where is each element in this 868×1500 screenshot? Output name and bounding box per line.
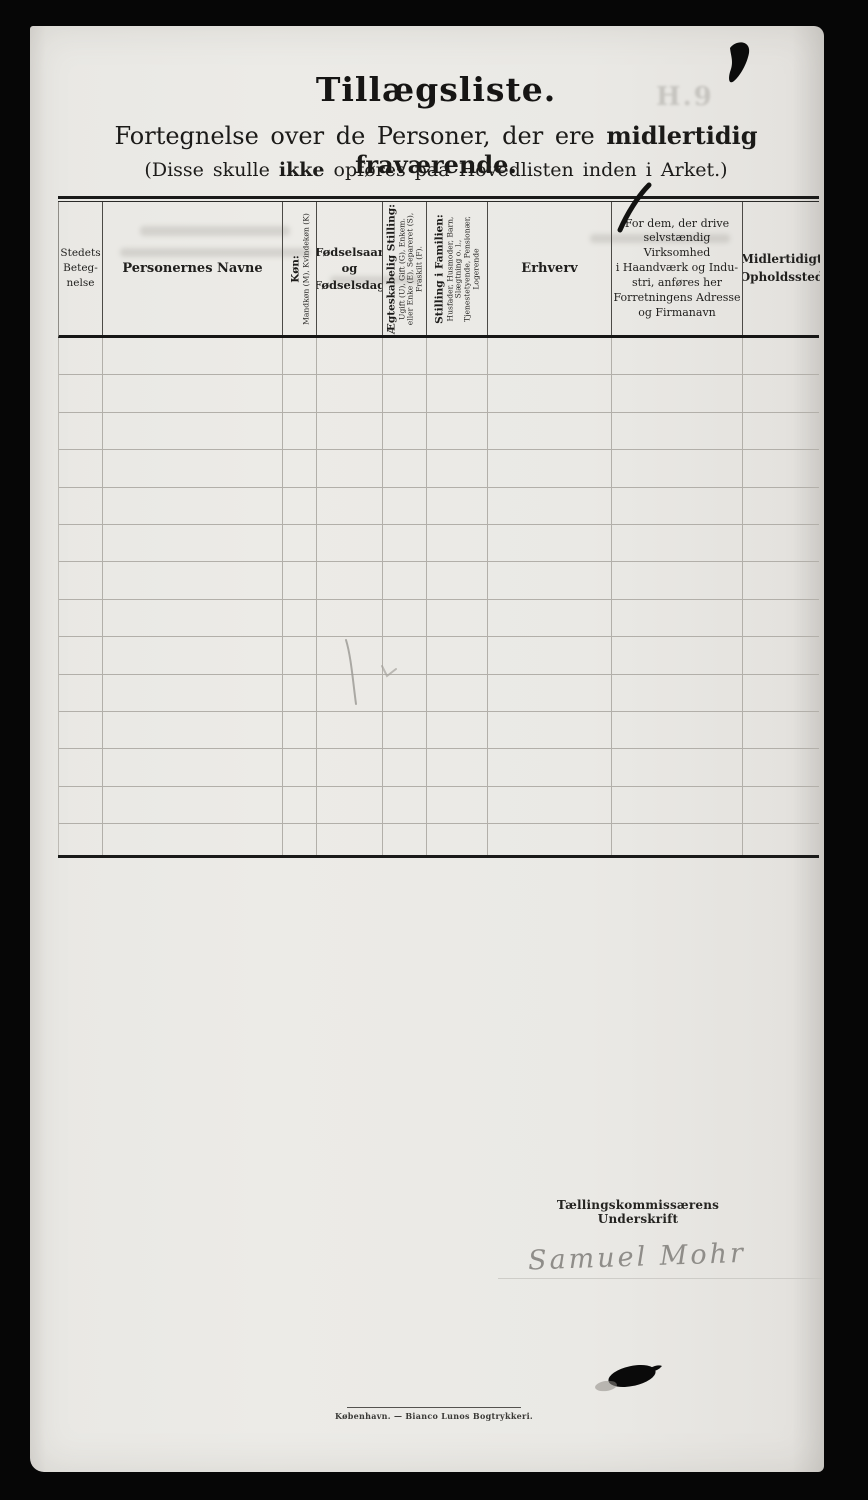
table-cell-empty [488,712,612,748]
table-cell-empty [283,712,317,748]
table-row [59,413,819,450]
table-cell-empty [612,600,743,636]
table-cell-empty [103,787,283,823]
table-row [59,488,819,525]
table-row [59,600,819,637]
table-cell-empty [283,413,317,449]
table-cell-empty [317,712,383,748]
table-cell-empty [283,525,317,561]
table-cell-empty [103,488,283,524]
rotated-header: Stilling i Familien: Husfader, Husmoder,… [433,204,480,334]
table-header-row: Stedets Beteg- nelse Personernes Navne K… [58,202,819,338]
column-header-label: Stedets Beteg- nelse [60,246,100,292]
table-cell-empty [103,338,283,374]
table-cell-empty [283,824,317,855]
table-cell-empty [488,488,612,524]
table-cell-empty [427,375,488,411]
table-cell-empty [317,824,383,855]
table-cell-empty [383,413,427,449]
table-cell-empty [283,600,317,636]
table-cell-empty [488,749,612,785]
signature-line [498,1278,822,1279]
table-cell-empty [612,675,743,711]
table-cell-empty [283,675,317,711]
signature-label: Tællingskommissærens Underskrift [528,1198,748,1226]
table-cell-empty [317,525,383,561]
table-cell-empty [383,488,427,524]
column-header-label: Fødselsaar og Fødselsdag [317,244,383,292]
table-row [59,675,819,712]
table-cell-empty [427,749,488,785]
table-cell-empty [612,749,743,785]
table-row [59,824,819,855]
table-cell-empty [383,450,427,486]
table-cell-empty [488,675,612,711]
table-row [59,338,819,375]
table-cell-empty [427,675,488,711]
column-header-label: Køn: [289,204,302,334]
table-cell-empty [383,787,427,823]
table-cell-empty [103,562,283,598]
table-cell-empty [612,488,743,524]
table-cell-empty [283,450,317,486]
table-cell-empty [103,600,283,636]
table-cell-empty [488,450,612,486]
table-cell-empty [283,787,317,823]
table-cell-empty [383,562,427,598]
table-cell-empty [612,375,743,411]
table-row [59,712,819,749]
table-cell-empty [103,675,283,711]
table-row [59,525,819,562]
table-cell-empty [283,375,317,411]
table-cell-empty [59,824,103,855]
table-cell-empty [488,600,612,636]
subtitle-prefix: Fortegnelse over de Personer, der ere [114,122,606,150]
table-cell-empty [743,749,820,785]
table-cell-empty [317,375,383,411]
table-cell-empty [743,413,820,449]
table-cell-empty [743,787,820,823]
column-header-sublabel: Ugift (U), Gift (G), Enkem. eller Enke (… [398,204,424,334]
table-cell-empty [103,413,283,449]
table-cell-empty [103,637,283,673]
table-cell-empty [427,787,488,823]
table-cell-empty [612,787,743,823]
table-cell-empty [317,787,383,823]
table-row [59,562,819,599]
column-header-label: Erhverv [521,261,577,276]
table-cell-empty [612,637,743,673]
table-cell-empty [103,712,283,748]
column-header-label: Personernes Navne [122,261,262,276]
column-header-virksomhed-note: For dem, der drive selvstændig Virksomhe… [612,202,743,335]
note-bold: ikke [279,159,325,181]
table-cell-empty [383,749,427,785]
table-row [59,375,819,412]
column-header-stilling-i-familien: Stilling i Familien: Husfader, Husmoder,… [427,202,488,335]
table-cell-empty [743,712,820,748]
note-prefix: (Disse skulle [144,159,278,181]
table-cell-empty [59,600,103,636]
table-cell-empty [488,787,612,823]
table-cell-empty [317,450,383,486]
table-cell-empty [383,675,427,711]
table-cell-empty [427,824,488,855]
table-cell-empty [59,712,103,748]
column-header-label: For dem, der drive selvstændig Virksomhe… [612,217,742,321]
table-cell-empty [283,562,317,598]
table-cell-empty [103,375,283,411]
column-header-erhverv: Erhverv [488,202,612,335]
table-cell-empty [103,749,283,785]
table-cell-empty [743,600,820,636]
table-cell-empty [383,525,427,561]
table-cell-empty [59,338,103,374]
table-cell-empty [427,488,488,524]
table-cell-empty [743,488,820,524]
table-cell-empty [283,488,317,524]
table-cell-empty [743,675,820,711]
table-cell-empty [383,600,427,636]
table-cell-empty [103,824,283,855]
table-cell-empty [488,525,612,561]
table-cell-empty [283,338,317,374]
table-cell-empty [59,450,103,486]
table-cell-empty [427,413,488,449]
table-cell-empty [59,749,103,785]
table-cell-empty [383,637,427,673]
table-cell-empty [612,824,743,855]
table-cell-empty [427,637,488,673]
table-cell-empty [488,637,612,673]
column-header-stedets-betegnelse: Stedets Beteg- nelse [59,202,103,335]
table-row [59,749,819,786]
column-header-kon: Køn: Mandkøn (M), Kvindekøn (K) [283,202,317,335]
table-cell-empty [743,450,820,486]
rotated-header: Køn: Mandkøn (M), Kvindekøn (K) [289,204,310,334]
table-cell-empty [317,637,383,673]
table-cell-empty [612,413,743,449]
column-header-aegteskabelig-stilling: Ægteskabelig Stilling: Ugift (U), Gift (… [383,202,427,335]
column-header-label: Stilling i Familien: [433,204,446,334]
table-cell-empty [427,712,488,748]
printer-imprint: København. — Bianco Lunos Bogtrykkeri. [322,1411,546,1421]
ink-blot-smear [594,1380,617,1393]
scan-background: H.9 Tillægsliste. Fortegnelse over de Pe… [0,0,868,1500]
handwritten-signature: Samuel Mohr [528,1239,729,1277]
column-header-label: Midlertidigt Opholdssted [743,251,820,286]
table-cell-empty [427,338,488,374]
table-cell-empty [317,600,383,636]
table-cell-empty [427,450,488,486]
table-cell-empty [59,488,103,524]
table-cell-empty [488,375,612,411]
table-cell-empty [612,338,743,374]
page-title: Tillægsliste. [30,70,824,109]
note-suffix: opføres paa Hovedlisten inden i Arket.) [325,159,728,181]
table-cell-empty [743,562,820,598]
ink-blot-tail [650,1365,662,1372]
table-cell-empty [427,525,488,561]
footer-rule [347,1407,521,1408]
census-table: Stedets Beteg- nelse Personernes Navne K… [58,196,819,858]
table-cell-empty [383,824,427,855]
table-cell-empty [59,675,103,711]
column-header-label: Ægteskabelig Stilling: [385,204,398,334]
table-cell-empty [103,450,283,486]
table-bottom-rule [58,855,819,858]
table-cell-empty [612,525,743,561]
table-cell-empty [59,413,103,449]
table-cell-empty [317,749,383,785]
table-cell-empty [59,562,103,598]
table-cell-empty [317,675,383,711]
table-cell-empty [59,787,103,823]
table-cell-empty [317,562,383,598]
table-cell-empty [743,824,820,855]
table-cell-empty [488,338,612,374]
column-header-sublabel: Husfader, Husmoder, Barn, Slægtning o. l… [446,204,481,334]
table-cell-empty [743,338,820,374]
table-cell-empty [427,562,488,598]
table-cell-empty [283,749,317,785]
page-note: (Disse skulle ikke opføres paa Hovedlist… [30,159,824,181]
table-row [59,637,819,674]
table-cell-empty [283,637,317,673]
table-cell-empty [743,525,820,561]
column-header-fodselsdato: Fødselsaar og Fødselsdag [317,202,383,335]
table-cell-empty [743,375,820,411]
table-row [59,450,819,487]
table-cell-empty [383,375,427,411]
table-cell-empty [743,637,820,673]
table-cell-empty [59,375,103,411]
table-cell-empty [383,712,427,748]
paper-sheet: H.9 Tillægsliste. Fortegnelse over de Pe… [30,26,824,1472]
table-cell-empty [103,525,283,561]
rotated-header: Ægteskabelig Stilling: Ugift (U), Gift (… [385,204,424,334]
table-cell-empty [383,338,427,374]
table-cell-empty [612,450,743,486]
column-header-sublabel: Mandkøn (M), Kvindekøn (K) [301,204,310,334]
table-cell-empty [317,413,383,449]
table-cell-empty [59,525,103,561]
ink-blot-bottom [606,1361,657,1391]
table-cell-empty [317,338,383,374]
table-body [58,338,819,855]
table-cell-empty [488,824,612,855]
table-row [59,787,819,824]
table-cell-empty [59,637,103,673]
table-cell-empty [427,600,488,636]
table-cell-empty [612,712,743,748]
column-header-midlertidigt-opholdssted: Midlertidigt Opholdssted [743,202,820,335]
table-cell-empty [488,413,612,449]
column-header-personernes-navne: Personernes Navne [103,202,283,335]
table-cell-empty [317,488,383,524]
table-cell-empty [488,562,612,598]
table-cell-empty [612,562,743,598]
